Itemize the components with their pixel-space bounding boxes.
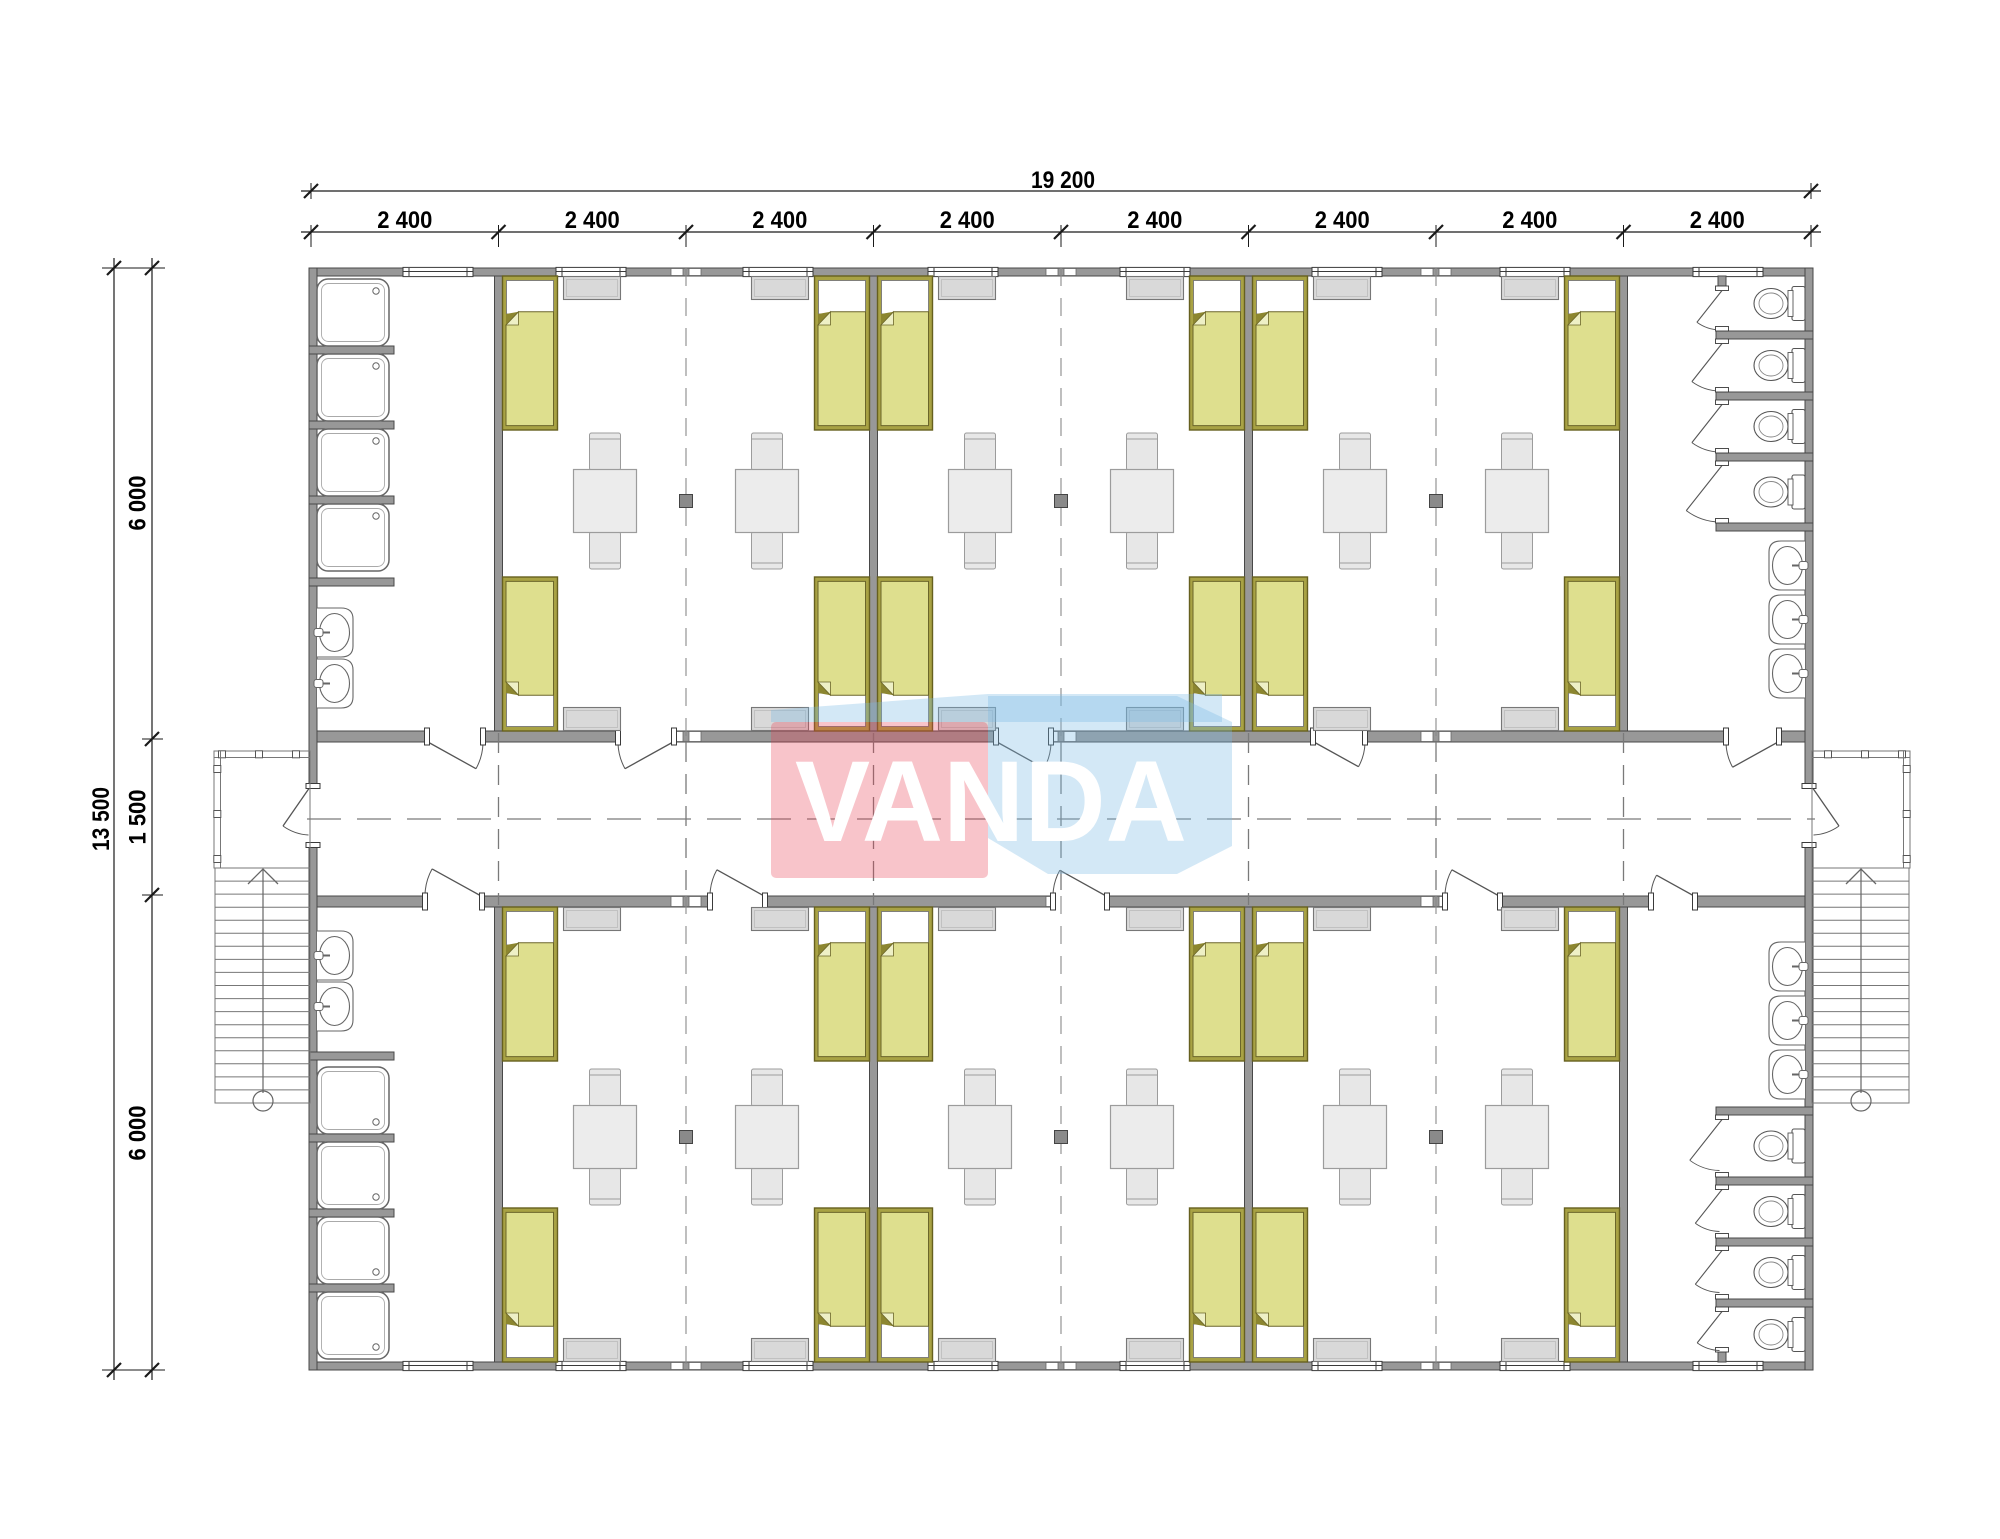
svg-text:2 400: 2 400: [940, 207, 995, 234]
svg-text:2 400: 2 400: [377, 207, 432, 234]
svg-text:6 000: 6 000: [125, 476, 152, 531]
svg-text:6 000: 6 000: [125, 1106, 152, 1161]
svg-text:2 400: 2 400: [1690, 207, 1745, 234]
svg-text:2 400: 2 400: [1127, 207, 1182, 234]
svg-text:2 400: 2 400: [752, 207, 807, 234]
svg-text:2 400: 2 400: [565, 207, 620, 234]
svg-text:19 200: 19 200: [1031, 167, 1095, 194]
svg-text:13 500: 13 500: [88, 787, 115, 851]
svg-text:VANDA: VANDA: [795, 738, 1187, 866]
svg-text:2 400: 2 400: [1315, 207, 1370, 234]
svg-text:1 500: 1 500: [125, 790, 152, 845]
svg-text:2 400: 2 400: [1502, 207, 1557, 234]
